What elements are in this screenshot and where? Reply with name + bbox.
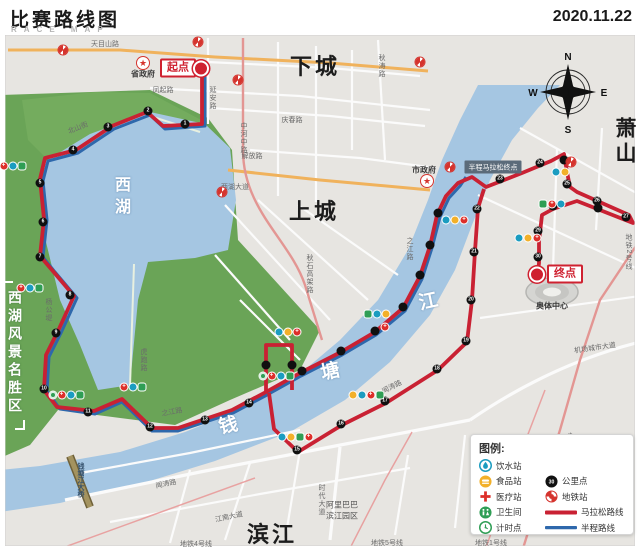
legend: 图例: 饮水站食品站医疗站卫生间计时点 30公里点地铁站马拉松路线半程路线 [470, 434, 634, 535]
compass-n: N [564, 52, 571, 63]
legend-item-km: 30公里点 [545, 474, 625, 490]
legend-item-label: 医疗站 [496, 491, 522, 503]
finish-label: 终点 [547, 265, 583, 284]
scenic-area-label: 西湖风景名胜区 [5, 290, 25, 416]
legend-item-timing: 计时点 [479, 520, 545, 536]
start-dot-icon [193, 60, 209, 76]
legend-item-label: 计时点 [496, 522, 522, 534]
legend-item-route-full: 马拉松路线 [545, 505, 625, 521]
finish-point-marker: 终点 [529, 265, 583, 284]
legend-item-water: 饮水站 [479, 458, 545, 474]
legend-item-toilet: 卫生间 [479, 505, 545, 521]
race-map-page: 比赛路线图 RACE MAP 2020.11.22 [0, 0, 640, 560]
food-legend-icon [479, 475, 492, 488]
legend-item-label: 饮水站 [496, 460, 522, 472]
compass-s: S [565, 125, 572, 136]
legend-spacer [545, 458, 625, 474]
compass-w: W [528, 88, 538, 99]
legend-item-label: 食品站 [496, 475, 522, 487]
legend-item-label: 半程路线 [581, 522, 615, 534]
scenic-bracket-bottom [15, 420, 25, 430]
legend-item-metro: 地铁站 [545, 489, 625, 505]
svg-text:30: 30 [549, 479, 555, 485]
legend-item-label: 地铁站 [562, 491, 588, 503]
km-legend-icon: 30 [545, 475, 558, 488]
compass-e: E [601, 88, 608, 99]
finish-dot-icon [529, 266, 545, 282]
medical-legend-icon [479, 490, 492, 503]
route-half-legend-icon [545, 521, 577, 534]
legend-item-label: 公里点 [562, 475, 588, 487]
start-label: 起点 [160, 59, 196, 78]
legend-item-food: 食品站 [479, 474, 545, 490]
timing-legend-icon [479, 521, 492, 534]
start-point-marker: 起点 [160, 59, 209, 78]
legend-item-route-half: 半程路线 [545, 520, 625, 536]
metro-legend-icon [545, 490, 558, 503]
legend-item-label: 马拉松路线 [581, 506, 624, 518]
route-full-legend-icon [545, 506, 577, 519]
toilet-legend-icon [479, 506, 492, 519]
legend-item-label: 卫生间 [496, 506, 522, 518]
half-finish-label: 半程马拉松终点 [465, 161, 522, 174]
legend-title: 图例: [479, 440, 625, 456]
legend-item-medical: 医疗站 [479, 489, 545, 505]
water-legend-icon [479, 459, 492, 472]
